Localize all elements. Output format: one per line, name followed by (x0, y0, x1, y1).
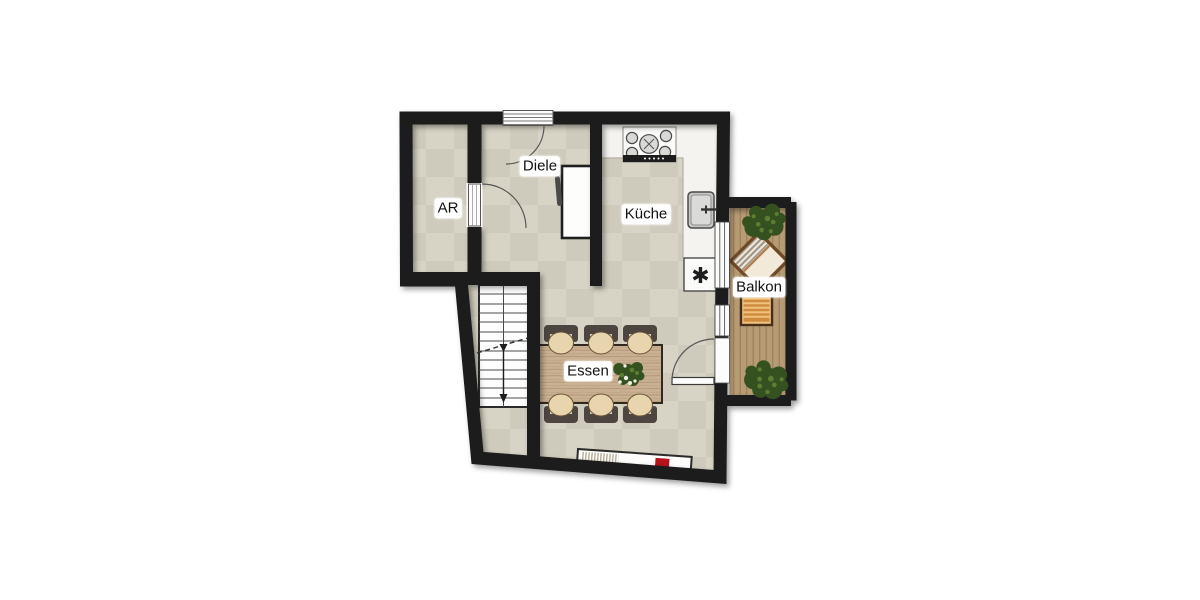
kitchen-window (715, 222, 730, 288)
balcony-door-leaf (672, 378, 714, 385)
floorplan-canvas: ✱ (0, 0, 1200, 600)
room-label-essen: Essen (564, 361, 612, 381)
floorplan-svg: ✱ (0, 0, 1200, 600)
dishwasher: ✱ (684, 258, 717, 291)
dishwasher-asterisk-icon: ✱ (691, 263, 709, 288)
room-label-ar: AR (435, 198, 462, 218)
balcony-bench (741, 296, 772, 325)
stove (623, 127, 676, 162)
staircase (477, 285, 531, 407)
kitchen-sink (688, 192, 716, 228)
room-label-diele: Diele (520, 156, 560, 176)
room-label-balkon: Balkon (733, 277, 785, 297)
room-label-kueche: Küche (622, 204, 671, 224)
